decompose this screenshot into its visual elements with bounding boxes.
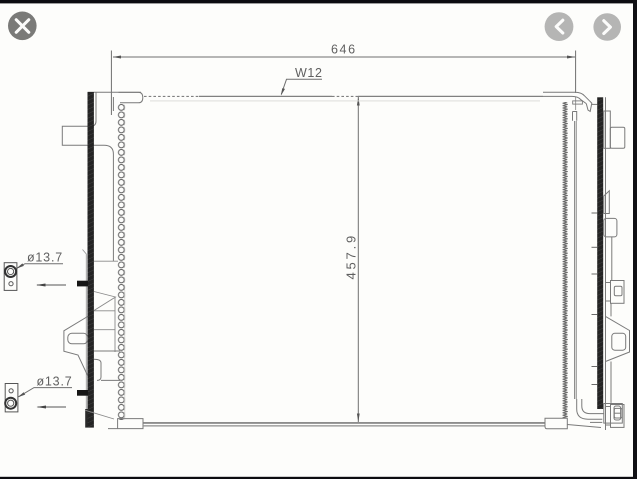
svg-text:646: 646 bbox=[331, 43, 357, 57]
svg-text:ø13.7: ø13.7 bbox=[27, 251, 63, 265]
svg-text:ø13.7: ø13.7 bbox=[37, 374, 73, 388]
svg-text:457.9: 457.9 bbox=[344, 233, 359, 280]
svg-text:W12: W12 bbox=[295, 66, 323, 80]
